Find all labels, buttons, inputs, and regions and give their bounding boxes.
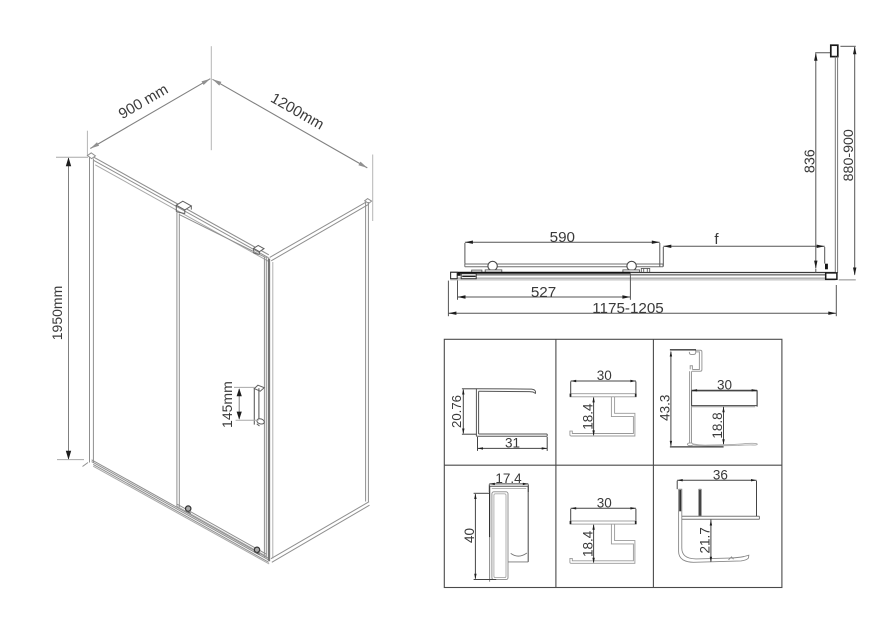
svg-text:31: 31	[505, 436, 520, 451]
svg-text:145mm: 145mm	[219, 381, 235, 428]
svg-text:17.4: 17.4	[495, 471, 522, 486]
svg-text:18.8: 18.8	[710, 412, 725, 438]
svg-text:43.3: 43.3	[657, 395, 672, 421]
svg-text:30: 30	[597, 496, 612, 511]
svg-text:1175-1205: 1175-1205	[592, 300, 664, 317]
svg-text:18.4: 18.4	[580, 530, 595, 557]
svg-text:527: 527	[531, 284, 556, 301]
svg-text:18.4: 18.4	[580, 403, 595, 430]
svg-text:40: 40	[462, 528, 477, 543]
svg-text:30: 30	[597, 368, 612, 383]
svg-text:36: 36	[713, 467, 728, 482]
svg-text:1950mm: 1950mm	[49, 286, 65, 340]
svg-text:880-900: 880-900	[841, 129, 857, 181]
svg-text:20.76: 20.76	[449, 395, 464, 428]
svg-text:836: 836	[803, 149, 819, 173]
svg-text:590: 590	[550, 229, 575, 246]
svg-text:30: 30	[717, 378, 732, 393]
svg-text:21.7: 21.7	[697, 527, 712, 553]
